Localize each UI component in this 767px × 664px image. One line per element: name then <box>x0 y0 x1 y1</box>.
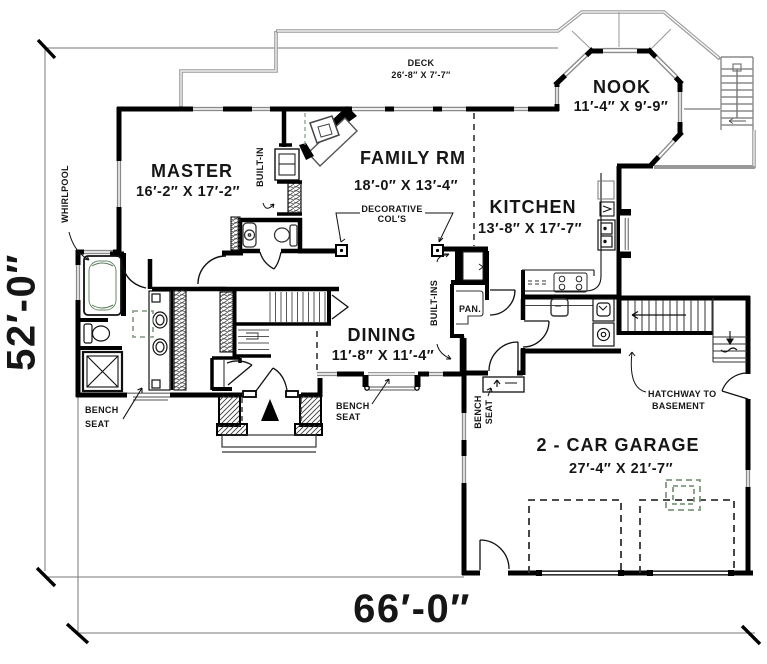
svg-text:16′-2″ X 17′-2″: 16′-2″ X 17′-2″ <box>136 184 240 200</box>
svg-text:BUILT-IN: BUILT-IN <box>255 147 265 187</box>
svg-text:2 - CAR GARAGE: 2 - CAR GARAGE <box>536 435 699 455</box>
svg-text:26′-8″ X 7′-7″: 26′-8″ X 7′-7″ <box>391 70 451 80</box>
svg-text:COL′S: COL′S <box>378 214 407 224</box>
svg-text:BASEMENT: BASEMENT <box>652 401 705 411</box>
svg-text:BENCH: BENCH <box>336 401 370 411</box>
svg-text:11′-4″ X 9′-9″: 11′-4″ X 9′-9″ <box>574 99 669 115</box>
svg-text:NOOK: NOOK <box>593 77 651 97</box>
svg-text:13′-8″ X 17′-7″: 13′-8″ X 17′-7″ <box>478 221 582 237</box>
svg-text:52′-0″: 52′-0″ <box>0 253 44 371</box>
svg-text:DECK: DECK <box>408 58 435 68</box>
svg-text:18′-0″ X 13′-4″: 18′-0″ X 13′-4″ <box>354 178 458 194</box>
svg-text:SEAT: SEAT <box>484 400 494 425</box>
svg-text:WHIRLPOOL: WHIRLPOOL <box>60 165 70 223</box>
svg-text:HATCHWAY TO: HATCHWAY TO <box>648 389 716 399</box>
svg-text:FAMILY RM: FAMILY RM <box>360 148 466 168</box>
svg-text:BENCH: BENCH <box>85 405 119 415</box>
svg-text:DINING: DINING <box>348 325 417 345</box>
svg-text:PAN.: PAN. <box>459 304 481 314</box>
svg-text:KITCHEN: KITCHEN <box>490 197 577 217</box>
svg-text:11′-8″ X 11′-4″: 11′-8″ X 11′-4″ <box>332 348 435 364</box>
svg-text:MASTER: MASTER <box>151 161 233 181</box>
svg-text:27′-4″ X 21′-7″: 27′-4″ X 21′-7″ <box>569 461 673 477</box>
svg-text:SEAT: SEAT <box>85 419 110 429</box>
svg-text:66′-0″: 66′-0″ <box>353 587 471 631</box>
svg-text:DECORATIVE: DECORATIVE <box>361 204 422 214</box>
svg-text:BENCH: BENCH <box>473 395 483 429</box>
svg-text:SEAT: SEAT <box>336 412 361 422</box>
svg-text:BUILT-INS: BUILT-INS <box>429 280 439 326</box>
